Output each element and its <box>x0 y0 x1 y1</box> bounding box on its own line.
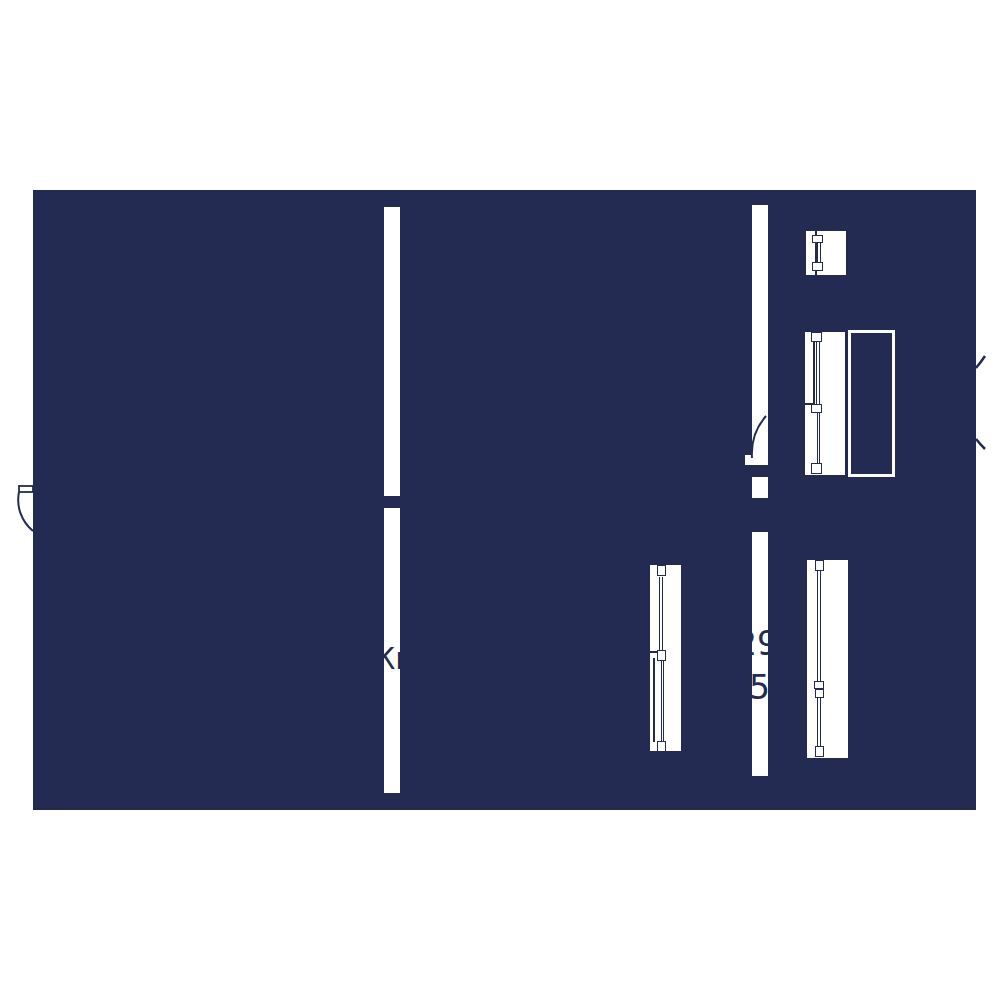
window-frame-line <box>653 658 655 742</box>
door-swing-arc-tip-upper <box>976 356 985 368</box>
window-frame-block <box>814 681 824 689</box>
area-label-line2: 5 <box>749 671 770 704</box>
window-frame-block <box>811 332 822 342</box>
window-glass-line <box>816 342 820 406</box>
window-glass-line <box>817 698 821 746</box>
door-leaf-left <box>19 486 33 492</box>
window-frame-block <box>657 565 666 576</box>
door-swing-arc-tip-lower <box>976 439 985 449</box>
window-middle-right <box>803 330 847 477</box>
window-frame-block <box>657 650 666 661</box>
door-swing-arc-left <box>18 492 33 531</box>
window-glass-line <box>661 661 664 741</box>
window-frame-block <box>657 741 666 752</box>
window-frame-block <box>815 560 824 571</box>
window-frame-block <box>811 404 822 413</box>
window-frame-block <box>812 235 823 243</box>
window-frame-block <box>811 463 822 474</box>
window-glass-line <box>817 243 821 263</box>
window-bottom-right <box>805 558 850 760</box>
window-frame-line <box>813 332 815 404</box>
window-frame-block <box>815 689 824 698</box>
window-frame-block <box>812 262 823 271</box>
window-glass-line <box>659 577 663 651</box>
window-glass-line <box>817 413 820 465</box>
glazed-panel-outline <box>848 330 895 477</box>
room-label-left: Жи <box>363 644 415 674</box>
area-label-line1: 29 <box>736 627 778 660</box>
window-glass-line <box>817 571 821 681</box>
window-top-right <box>804 229 848 277</box>
wall-gap-right-mid <box>752 477 768 498</box>
window-bottom-left <box>648 563 683 753</box>
floor-plan-canvas: Жи 29 5 <box>0 0 1000 1000</box>
window-frame-block <box>815 746 824 757</box>
door-pocket <box>745 455 752 465</box>
wall-gap-left-upper <box>384 207 400 496</box>
wall-gap-right-upper <box>752 205 768 465</box>
